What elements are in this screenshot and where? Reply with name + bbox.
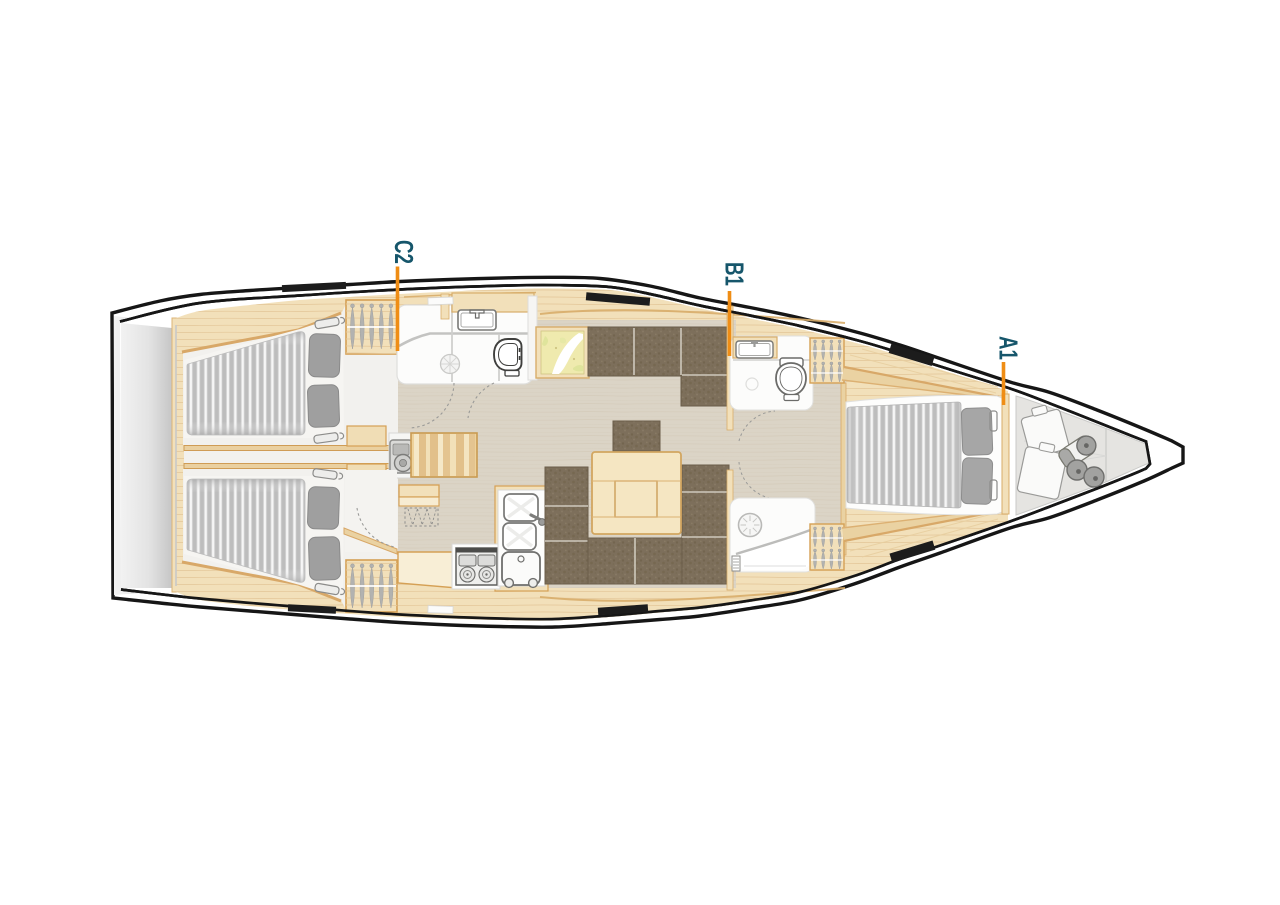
svg-text:A1: A1 [994,336,1024,360]
svg-text:B1: B1 [720,262,750,286]
svg-text:C2: C2 [389,240,419,264]
